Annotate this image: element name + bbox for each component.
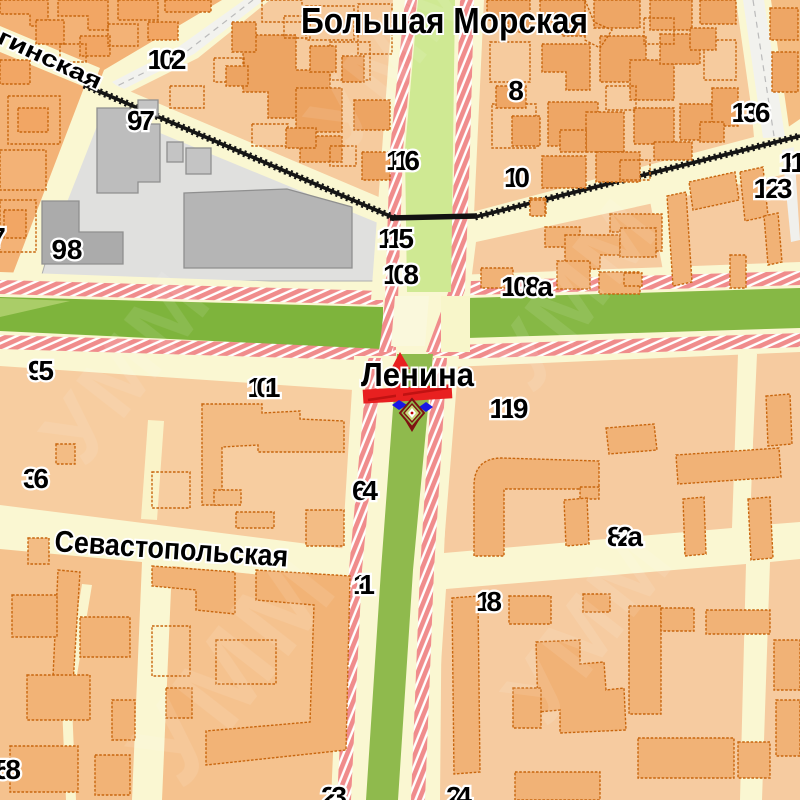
svg-text:18: 18 xyxy=(476,586,502,617)
svg-text:11: 11 xyxy=(353,569,375,600)
svg-text:11: 11 xyxy=(780,147,800,178)
svg-text:95: 95 xyxy=(28,355,54,386)
svg-text:7: 7 xyxy=(0,222,6,253)
svg-text:10: 10 xyxy=(504,162,530,193)
svg-text:8: 8 xyxy=(508,75,524,106)
svg-text:102: 102 xyxy=(148,44,187,75)
svg-text:58: 58 xyxy=(0,754,21,785)
svg-text:108а: 108а xyxy=(501,271,553,302)
svg-text:119: 119 xyxy=(490,393,529,424)
svg-text:82а: 82а xyxy=(607,521,643,552)
svg-text:98: 98 xyxy=(52,234,83,265)
svg-text:64: 64 xyxy=(352,475,378,506)
svg-text:36: 36 xyxy=(23,463,49,494)
svg-text:97: 97 xyxy=(127,105,155,136)
svg-text:108: 108 xyxy=(383,259,419,290)
svg-text:24: 24 xyxy=(446,781,472,800)
svg-text:101: 101 xyxy=(248,372,281,403)
svg-text:136: 136 xyxy=(732,97,771,128)
svg-text:Ленина: Ленина xyxy=(361,356,475,393)
svg-text:115: 115 xyxy=(378,223,414,254)
svg-text:23: 23 xyxy=(321,781,347,800)
svg-text:116: 116 xyxy=(386,145,420,176)
svg-text:Большая Морская: Большая Морская xyxy=(301,0,588,41)
